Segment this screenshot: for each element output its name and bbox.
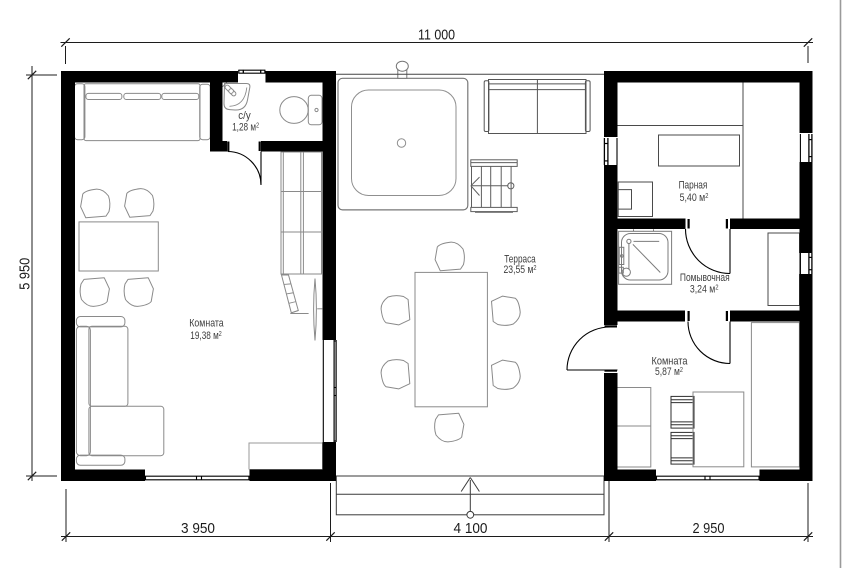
svg-text:с/у: с/у (238, 110, 251, 122)
svg-text:5,87 м2: 5,87 м2 (655, 366, 683, 378)
svg-text:1,28 м2: 1,28 м2 (232, 121, 259, 133)
svg-text:5,40 м2: 5,40 м2 (680, 192, 709, 204)
svg-text:3 950: 3 950 (181, 520, 215, 537)
svg-text:2 950: 2 950 (693, 520, 725, 537)
svg-text:3,24 м2: 3,24 м2 (690, 283, 719, 295)
svg-text:23,55 м2: 23,55 м2 (504, 264, 537, 276)
svg-text:4 100: 4 100 (454, 520, 488, 537)
svg-text:5 950: 5 950 (17, 258, 34, 290)
svg-text:Комната: Комната (189, 318, 223, 330)
svg-text:Парная: Парная (679, 180, 708, 192)
svg-text:19,38 м2: 19,38 м2 (190, 330, 222, 342)
svg-text:11 000: 11 000 (418, 27, 455, 44)
svg-text:Помывочная: Помывочная (680, 272, 730, 284)
